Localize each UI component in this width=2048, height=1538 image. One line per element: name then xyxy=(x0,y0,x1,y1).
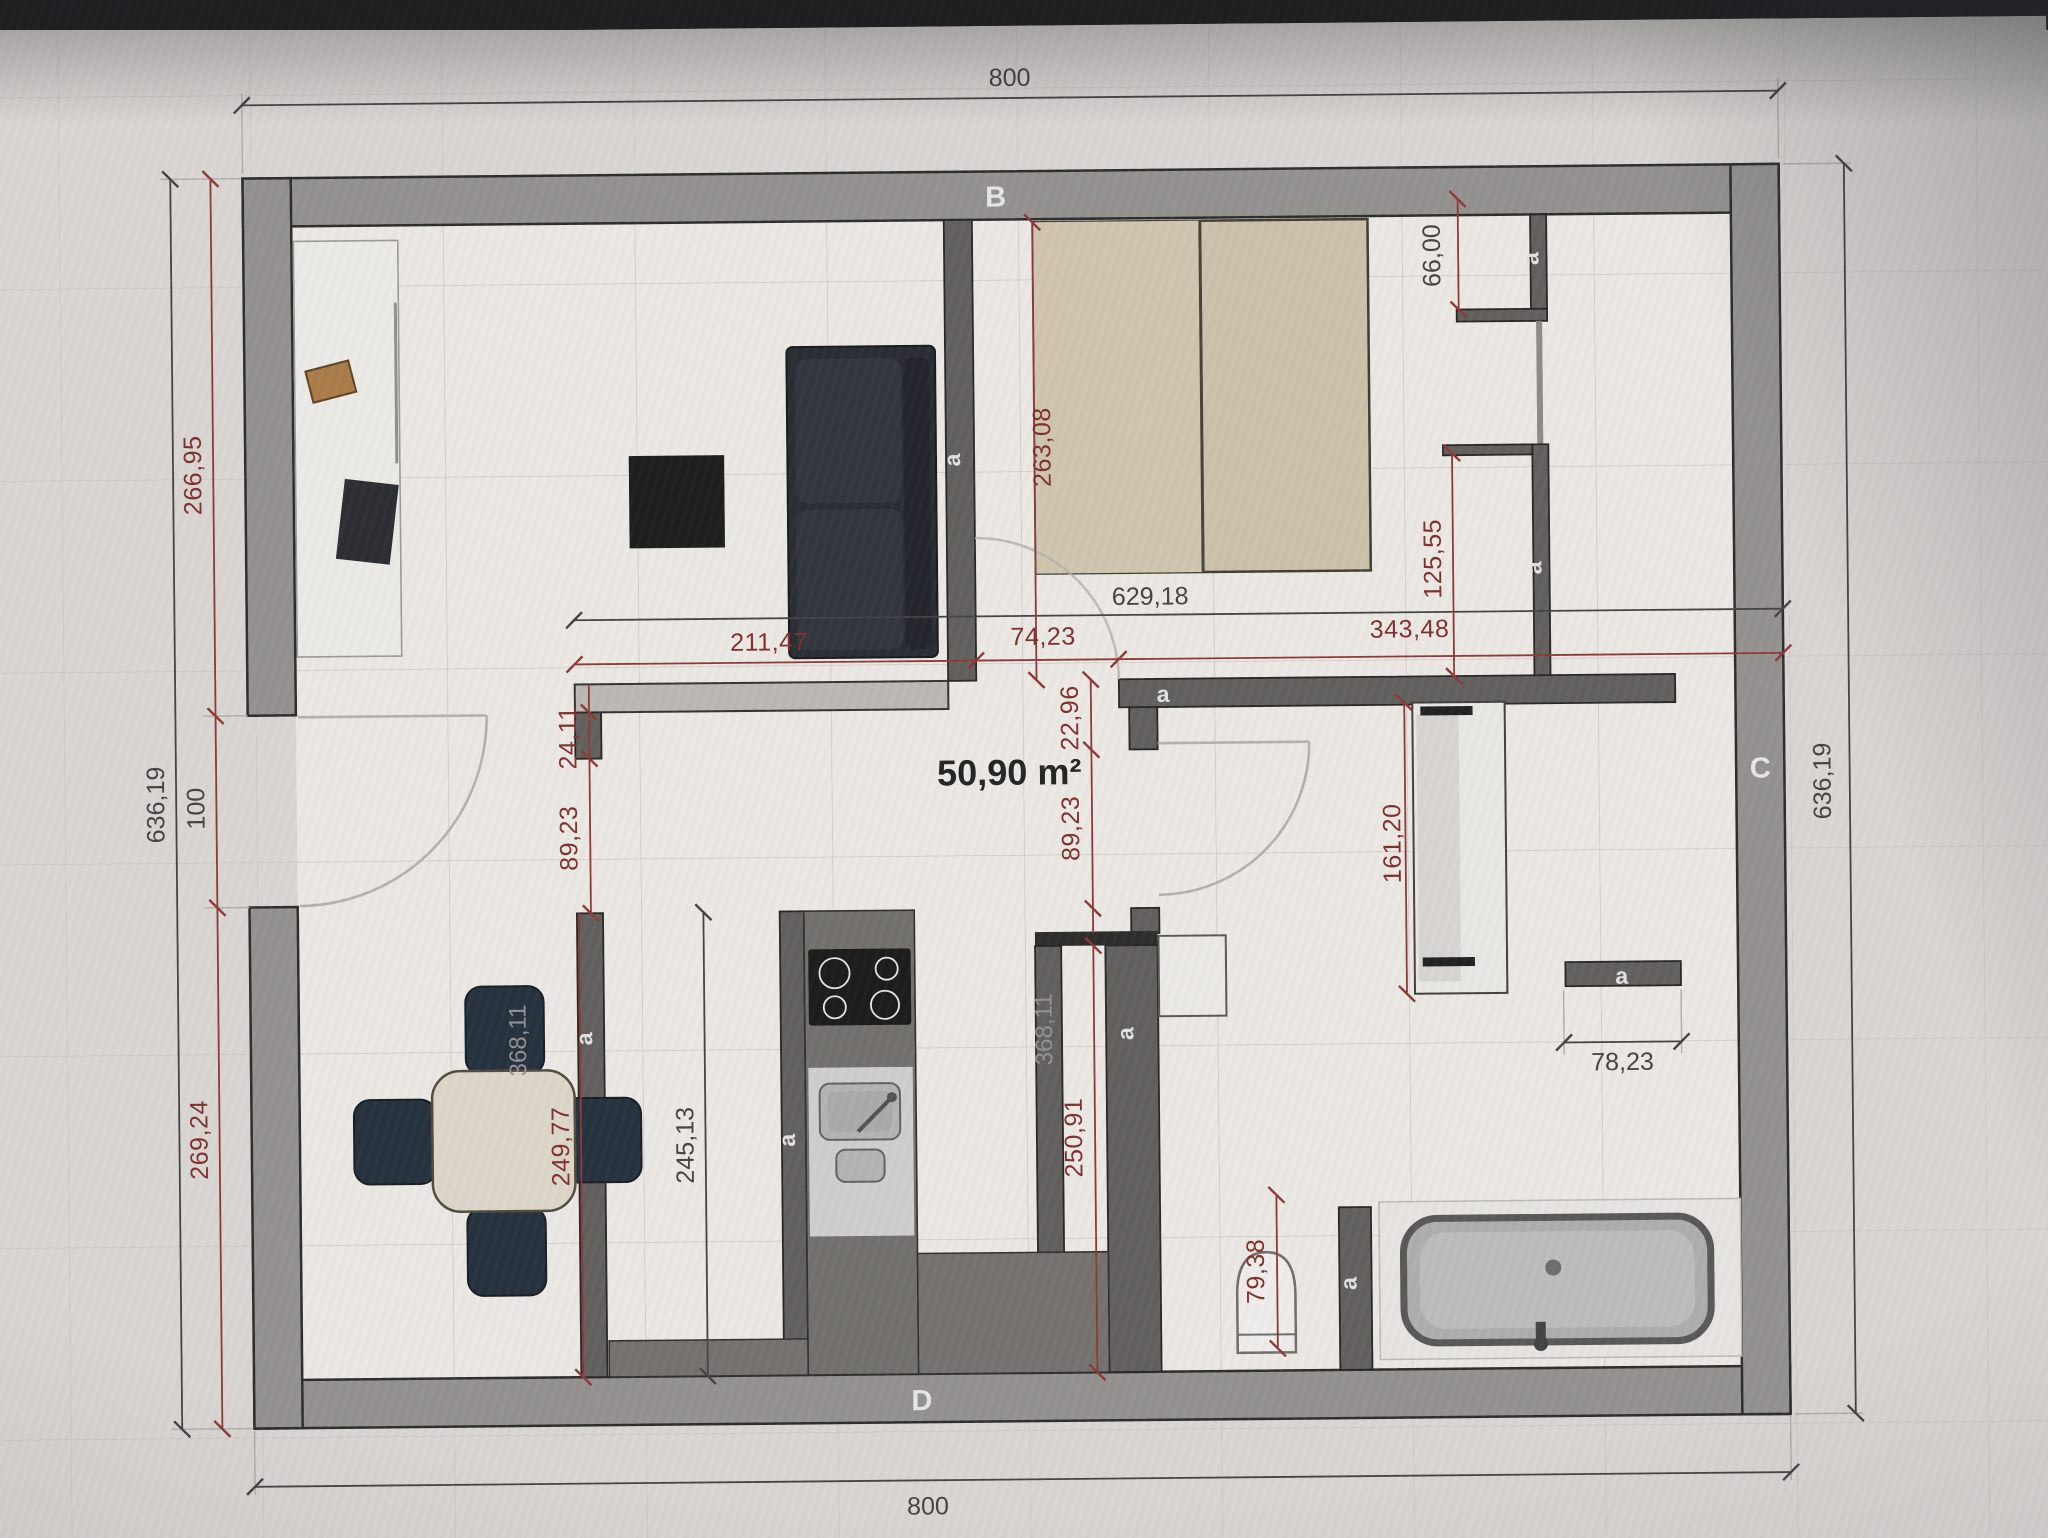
bed-mattress-left xyxy=(1033,221,1203,574)
hall-cabinet[interactable] xyxy=(1158,935,1226,1016)
dim-hall-door: 89,23 xyxy=(1057,796,1086,862)
bathtub-drain xyxy=(1545,1259,1561,1275)
wall-living-bottom[interactable] xyxy=(575,681,949,713)
dim-mid-left: 211,47 xyxy=(730,628,808,657)
dim-hall-stub: 22,96 xyxy=(1056,685,1085,751)
sink[interactable] xyxy=(807,1066,915,1238)
wardrobe[interactable] xyxy=(1412,702,1507,994)
wall-hall-stub-top[interactable] xyxy=(1129,707,1158,749)
dim-bath-nook: 78,23 xyxy=(1591,1048,1654,1077)
wall-tag-bath-nook: a xyxy=(1615,963,1628,989)
sofa-cushion-top xyxy=(794,358,902,504)
wall-closet-lower-return[interactable] xyxy=(1443,444,1532,455)
dim-bed-depth: 263,08 xyxy=(1028,407,1057,487)
dim-bottom-total: 800 xyxy=(907,1492,949,1520)
wall-bedroom-left[interactable] xyxy=(944,220,977,681)
wall-hall-stub-bottom[interactable] xyxy=(1131,908,1159,933)
wall-bath-left[interactable] xyxy=(1105,945,1161,1372)
dim-entry-opening: 89,23 xyxy=(555,805,584,871)
wall-left-upper[interactable] xyxy=(243,178,296,716)
dining-chair-bottom[interactable] xyxy=(467,1207,546,1296)
wall-hall-top[interactable] xyxy=(1119,674,1675,707)
dim-mid-right: 343,48 xyxy=(1370,615,1450,644)
wall-tag-bedroom: a xyxy=(939,453,965,466)
dim-mid-total: 629,18 xyxy=(1112,582,1189,611)
floor-plan-canvas[interactable]: 800 800 636,19 266,95 100 269,24 636,19 … xyxy=(0,16,2048,1538)
sofa-cushion-bottom xyxy=(796,509,904,651)
dim-island-left: 368,11 xyxy=(505,1004,533,1076)
wall-closet-upper-return[interactable] xyxy=(1457,309,1547,322)
dim-hall-length: 250,91 xyxy=(1060,1098,1089,1178)
wall-label-D: D xyxy=(911,1385,932,1417)
dining-chair-left[interactable] xyxy=(354,1100,437,1185)
wall-tag-hall-top: a xyxy=(1157,681,1170,707)
wall-tag-bath-left: a xyxy=(1112,1027,1138,1040)
dim-mid-door: 74,23 xyxy=(1010,623,1076,652)
dim-closet-opening: 66,00 xyxy=(1418,224,1447,287)
wall-left-lower[interactable] xyxy=(250,907,303,1429)
dim-dining-length: 249,77 xyxy=(547,1107,576,1187)
toilet-seat-line xyxy=(1238,1334,1296,1335)
dim-right-total: 636,19 xyxy=(1808,742,1837,819)
dim-top-total: 800 xyxy=(989,64,1031,92)
apartment-area-label: 50,90 m² xyxy=(937,751,1082,793)
wall-tag-closet-upper: a xyxy=(1517,252,1543,265)
wall-kitchen-niche-cap[interactable] xyxy=(1035,931,1158,946)
dim-closet-lower: 125,55 xyxy=(1419,519,1448,599)
dim-toilet-width: 79,38 xyxy=(1242,1239,1271,1305)
wall-tag-kitchen-right: a xyxy=(774,1134,800,1147)
wall-closet-upper[interactable] xyxy=(1530,214,1547,321)
wall-tag-bath-divider: a xyxy=(1336,1277,1362,1290)
wardrobe-shading xyxy=(1416,714,1461,981)
sofa-backrest xyxy=(903,358,932,649)
screen-photo: 800 800 636,19 266,95 100 269,24 636,19 … xyxy=(0,0,2048,1538)
wall-tag-closet-lower: a xyxy=(1520,561,1546,574)
bed[interactable] xyxy=(1033,219,1371,574)
wardrobe-handle-bottom xyxy=(1423,957,1475,967)
sink-drainer xyxy=(836,1149,884,1182)
dim-left-upper: 266,95 xyxy=(179,435,208,515)
dim-left-total: 636,19 xyxy=(142,767,171,844)
wall-label-C: C xyxy=(1750,752,1771,784)
dim-entry-stub: 24,11 xyxy=(554,706,583,770)
desk[interactable] xyxy=(293,240,401,657)
floor-plan-svg[interactable]: 800 800 636,19 266,95 100 269,24 636,19 … xyxy=(0,16,2048,1538)
closet-passage-line xyxy=(1536,321,1543,445)
wall-tag-kitchen-left: a xyxy=(571,1032,597,1045)
bathtub[interactable] xyxy=(1379,1198,1742,1359)
wardrobe-handle-top xyxy=(1420,706,1472,716)
dim-island-right: 368,11 xyxy=(1031,993,1059,1065)
dim-left-door: 100 xyxy=(182,788,210,830)
dim-kitchen-length: 245,13 xyxy=(671,1107,700,1184)
dim-wardrobe-length: 161,20 xyxy=(1378,803,1407,883)
kitchen-corner-cabinet[interactable] xyxy=(918,1252,1110,1374)
sofa[interactable] xyxy=(786,346,938,659)
desk-shelf-edge xyxy=(395,303,397,464)
dim-left-lower: 269,24 xyxy=(185,1100,214,1180)
coffee-table[interactable] xyxy=(629,455,725,548)
desk-laptop[interactable] xyxy=(336,479,399,565)
wall-label-B: B xyxy=(985,181,1006,213)
wall-closet-lower[interactable] xyxy=(1532,444,1550,675)
stove[interactable] xyxy=(808,948,911,1025)
